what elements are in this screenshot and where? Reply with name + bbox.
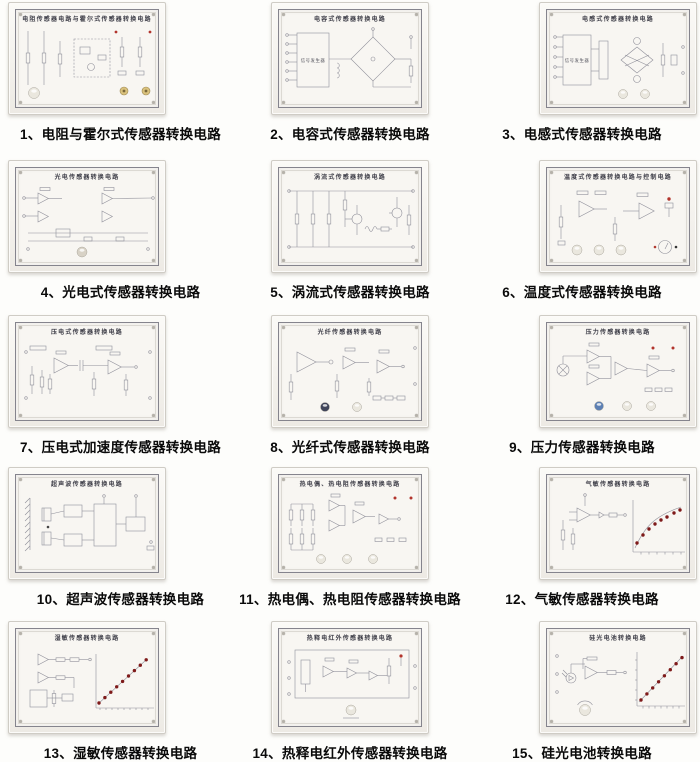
board-face: 电阻传感器电路与霍尔式传感器转换电路 [15, 9, 159, 108]
panel-caption: 13、湿敏传感器转换电路 [8, 742, 233, 762]
catalog-grid: 电阻传感器电路与霍尔式传感器转换电路 1、电阻与霍尔式传感器转换电路 电容式传感… [0, 0, 700, 756]
screw-icon [415, 259, 418, 262]
screw-icon [415, 101, 418, 104]
screw-icon [282, 414, 285, 417]
circuit-board: 电阻传感器电路与霍尔式传感器转换电路 [8, 2, 166, 115]
circuit-board: 湿敏传感器转换电路 [8, 621, 166, 734]
board-title: 压力传感器转换电路 [547, 327, 689, 336]
panel-caption: 5、涡流式传感器转换电路 [233, 281, 467, 301]
schematic-drawing [18, 490, 158, 566]
schematic-drawing [18, 25, 158, 101]
product-cell: 热电偶、热电阻传感器转换电路 11、热电偶、热电阻传感器转换电路 [233, 450, 467, 605]
panel-caption-text: 1、电阻与霍尔式传感器转换电路 [20, 123, 221, 143]
screw-icon [415, 566, 418, 569]
screw-icon [19, 259, 22, 262]
schematic-drawing [281, 644, 421, 720]
board-face: 湿敏传感器转换电路 [15, 628, 159, 727]
screw-icon [683, 101, 686, 104]
product-cell: 电阻传感器电路与霍尔式传感器转换电路 1、电阻与霍尔式传感器转换电路 [0, 0, 233, 150]
product-cell: 涡流式传感器转换电路 5、涡流式传感器转换电路 [233, 150, 467, 300]
screw-icon [282, 101, 285, 104]
board-title: 压电式传感器转换电路 [16, 327, 158, 336]
product-cell: 电感式传感器转换电路 信号发生器 3、电感式传感器转换电路 [467, 0, 700, 150]
product-cell: 气敏传感器转换电路 12、气敏传感器转换电路 [467, 450, 700, 605]
board-face: 电感式传感器转换电路 信号发生器 [546, 9, 690, 108]
circuit-board: 硅光电池转换电路 [539, 621, 697, 734]
board-title: 电感式传感器转换电路 [547, 14, 689, 23]
box-label: 信号发生器 [565, 57, 590, 64]
board-title: 湿敏传感器转换电路 [16, 633, 158, 642]
board-title: 气敏传感器转换电路 [547, 479, 689, 488]
schematic-drawing: 信号发生器 [549, 25, 689, 101]
panel-photo: 涡流式传感器转换电路 [271, 160, 429, 273]
board-face: 光纤传感器转换电路 [278, 322, 422, 421]
panel-photo: 压电式传感器转换电路 [8, 315, 166, 428]
product-cell: 光电传感器转换电路 4、光电式传感器转换电路 [0, 150, 233, 300]
panel-caption-text: 3、电感式传感器转换电路 [502, 123, 662, 143]
board-title: 光电传感器转换电路 [16, 172, 158, 181]
board-title: 超声波传感器转换电路 [16, 479, 158, 488]
board-title: 热电偶、热电阻传感器转换电路 [279, 479, 421, 488]
circuit-board: 光纤传感器转换电路 [271, 315, 429, 428]
board-face: 光电传感器转换电路 [15, 167, 159, 266]
panel-caption-text: 14、热释电红外传感器转换电路 [252, 742, 447, 762]
panel-photo: 热电偶、热电阻传感器转换电路 [271, 467, 429, 580]
panel-caption-text: 4、光电式传感器转换电路 [41, 281, 201, 301]
screw-icon [19, 101, 22, 104]
circuit-board: 电感式传感器转换电路 信号发生器 [539, 2, 697, 115]
screw-icon [282, 566, 285, 569]
schematic-drawing: 信号发生器 [281, 25, 421, 101]
circuit-board: 气敏传感器转换电路 [539, 467, 697, 580]
board-face: 硅光电池转换电路 [546, 628, 690, 727]
product-cell: 电容式传感器转换电路 信号发生器 2、电容式传感器转换电路 [233, 0, 467, 150]
board-title: 光纤传感器转换电路 [279, 327, 421, 336]
panel-caption-text: 15、硅光电池转换电路 [512, 742, 652, 762]
schematic-drawing [549, 183, 689, 259]
panel-photo: 湿敏传感器转换电路 [8, 621, 166, 734]
panel-photo: 压力传感器转换电路 [539, 315, 697, 428]
schematic-drawing [549, 644, 689, 720]
product-cell: 光纤传感器转换电路 8、光纤式传感器转换电路 [233, 300, 467, 450]
panel-caption-text: 5、涡流式传感器转换电路 [270, 281, 430, 301]
board-title: 电容式传感器转换电路 [279, 14, 421, 23]
panel-photo: 电容式传感器转换电路 信号发生器 [271, 2, 429, 115]
screw-icon [282, 259, 285, 262]
panel-caption-text: 6、温度式传感器转换电路 [502, 281, 662, 301]
panel-caption-text: 2、电容式传感器转换电路 [270, 123, 430, 143]
screw-icon [683, 414, 686, 417]
screw-icon [550, 720, 553, 723]
board-title: 温度式传感器转换电路与控制电路 [547, 172, 689, 181]
circuit-board: 光电传感器转换电路 [8, 160, 166, 273]
circuit-board: 压力传感器转换电路 [539, 315, 697, 428]
board-face: 气敏传感器转换电路 [546, 474, 690, 573]
board-title: 电阻传感器电路与霍尔式传感器转换电路 [16, 14, 158, 23]
board-face: 压电式传感器转换电路 [15, 322, 159, 421]
screw-icon [19, 720, 22, 723]
board-face: 超声波传感器转换电路 [15, 474, 159, 573]
panel-photo: 电阻传感器电路与霍尔式传感器转换电路 [8, 2, 166, 115]
board-face: 热释电红外传感器转换电路 [278, 628, 422, 727]
panel-caption-text: 13、湿敏传感器转换电路 [44, 742, 198, 762]
panel-caption: 15、硅光电池转换电路 [467, 742, 697, 762]
product-cell: 压力传感器转换电路 9、压力传感器转换电路 [467, 300, 700, 450]
circuit-board: 热释电红外传感器转换电路 [271, 621, 429, 734]
panel-caption: 6、温度式传感器转换电路 [467, 281, 697, 301]
panel-caption: 2、电容式传感器转换电路 [233, 123, 467, 143]
screw-icon [683, 720, 686, 723]
screw-icon [152, 566, 155, 569]
board-face: 温度式传感器转换电路与控制电路 [546, 167, 690, 266]
panel-photo: 气敏传感器转换电路 [539, 467, 697, 580]
schematic-drawing [18, 183, 158, 259]
product-cell: 温度式传感器转换电路与控制电路 6、温度式传感器转换电路 [467, 150, 700, 300]
panel-photo: 电感式传感器转换电路 信号发生器 [539, 2, 697, 115]
board-face: 电容式传感器转换电路 信号发生器 [278, 9, 422, 108]
board-face: 热电偶、热电阻传感器转换电路 [278, 474, 422, 573]
screw-icon [415, 414, 418, 417]
box-label: 信号发生器 [301, 57, 326, 64]
panel-photo: 温度式传感器转换电路与控制电路 [539, 160, 697, 273]
board-title: 热释电红外传感器转换电路 [279, 633, 421, 642]
schematic-drawing [18, 338, 158, 414]
circuit-board: 超声波传感器转换电路 [8, 467, 166, 580]
schematic-drawing [281, 338, 421, 414]
panel-caption: 14、热释电红外传感器转换电路 [233, 742, 467, 762]
product-cell: 超声波传感器转换电路 10、超声波传感器转换电路 [0, 450, 233, 605]
screw-icon [550, 566, 553, 569]
schematic-drawing [549, 490, 689, 566]
screw-icon [282, 720, 285, 723]
schematic-drawing [549, 338, 689, 414]
product-cell: 热释电红外传感器转换电路 14、热释电红外传感器转换电路 [233, 605, 467, 756]
screw-icon [415, 720, 418, 723]
schematic-drawing [18, 644, 158, 720]
screw-icon [19, 414, 22, 417]
board-face: 涡流式传感器转换电路 [278, 167, 422, 266]
screw-icon [683, 259, 686, 262]
schematic-drawing [281, 183, 421, 259]
circuit-board: 涡流式传感器转换电路 [271, 160, 429, 273]
screw-icon [550, 259, 553, 262]
screw-icon [152, 259, 155, 262]
screw-icon [152, 101, 155, 104]
panel-photo: 超声波传感器转换电路 [8, 467, 166, 580]
screw-icon [683, 566, 686, 569]
panel-photo: 热释电红外传感器转换电路 [271, 621, 429, 734]
panel-caption: 3、电感式传感器转换电路 [467, 123, 697, 143]
board-title: 硅光电池转换电路 [547, 633, 689, 642]
schematic-drawing [281, 490, 421, 566]
board-face: 压力传感器转换电路 [546, 322, 690, 421]
circuit-board: 压电式传感器转换电路 [8, 315, 166, 428]
screw-icon [550, 414, 553, 417]
panel-caption: 1、电阻与霍尔式传感器转换电路 [8, 123, 233, 143]
circuit-board: 热电偶、热电阻传感器转换电路 [271, 467, 429, 580]
panel-photo: 硅光电池转换电路 [539, 621, 697, 734]
product-cell: 湿敏传感器转换电路 13、湿敏传感器转换电路 [0, 605, 233, 756]
circuit-board: 温度式传感器转换电路与控制电路 [539, 160, 697, 273]
circuit-board: 电容式传感器转换电路 信号发生器 [271, 2, 429, 115]
panel-photo: 光纤传感器转换电路 [271, 315, 429, 428]
product-cell: 压电式传感器转换电路 7、压电式加速度传感器转换电路 [0, 300, 233, 450]
screw-icon [152, 720, 155, 723]
panel-photo: 光电传感器转换电路 [8, 160, 166, 273]
screw-icon [19, 566, 22, 569]
screw-icon [152, 414, 155, 417]
product-cell: 硅光电池转换电路 15、硅光电池转换电路 [467, 605, 700, 756]
panel-caption: 4、光电式传感器转换电路 [8, 281, 233, 301]
screw-icon [550, 101, 553, 104]
board-title: 涡流式传感器转换电路 [279, 172, 421, 181]
